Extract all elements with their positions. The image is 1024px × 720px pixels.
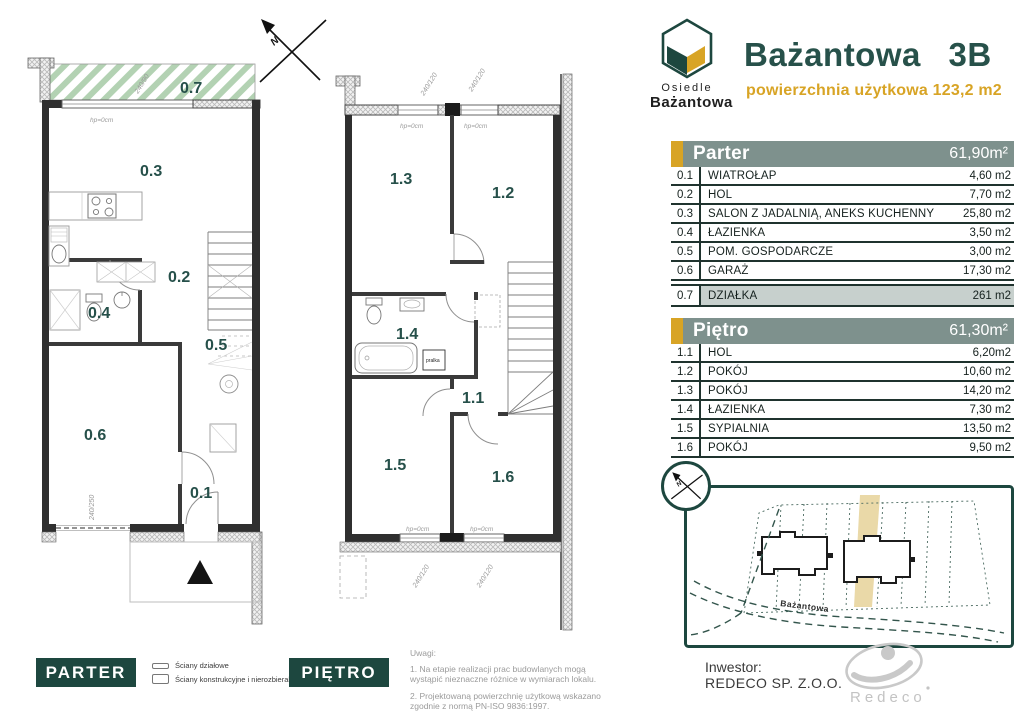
room-area: 7,70 m2: [969, 189, 1011, 201]
parter-floorplan: 0.7 240/90 hp=0cm 240/250: [22, 12, 314, 652]
room-name: WIATROŁAP: [708, 170, 777, 182]
wardrobe: [475, 295, 500, 327]
notes-title: Uwagi:: [410, 648, 620, 659]
legend-label: Ściany konstrukcyjne i nierozbieralne: [175, 675, 298, 684]
room-name: DZIAŁKA: [708, 290, 757, 302]
dzialka-row: 0.7 DZIAŁKA 261 m2: [671, 284, 1014, 307]
dim-garage-door: 240/250: [89, 495, 96, 521]
room-label-1-5: 1.5: [384, 457, 406, 474]
room-id: 1.3: [671, 385, 699, 397]
room-label-1-3: 1.3: [390, 171, 412, 188]
building-outline-right: [844, 536, 910, 583]
toilet-icon: [367, 306, 381, 324]
room-name: ŁAZIENKA: [708, 404, 765, 416]
sill-label: hp=0cm: [406, 526, 430, 533]
table-row: 1.2 POKÓJ 10,60 m2: [671, 363, 1014, 382]
building-outline-left: [762, 532, 827, 575]
room-id: 1.2: [671, 366, 699, 378]
room-label-0-1: 0.1: [190, 485, 212, 502]
room-name: ŁAZIENKA: [708, 227, 765, 239]
parter-table-title: Parter: [693, 143, 750, 165]
north-compass-icon: N: [250, 12, 336, 92]
dim-window: 240/120: [467, 68, 487, 94]
note-text: 2. Projektowaną powierzchnię użytkową ws…: [410, 691, 620, 712]
table-row: 1.4 ŁAZIENKA 7,30 m2: [671, 401, 1014, 420]
washer-icon: [220, 375, 238, 393]
dim-window: 240/120: [419, 72, 439, 98]
table-row: 0.6 GARAŻ 17,30 m2: [671, 262, 1014, 281]
flyer-page: 0.7 240/90 hp=0cm 240/250: [0, 0, 1024, 720]
room-id: 1.6: [671, 442, 699, 454]
pietro-table-title: Piętro: [693, 320, 749, 342]
north-letter: N: [269, 35, 282, 49]
table-row: 0.2 HOL 7,70 m2: [671, 186, 1014, 205]
room-area: 7,30 m2: [969, 404, 1011, 416]
legend-item: Ściany konstrukcyjne i nierozbieralne: [152, 674, 287, 684]
sill-label: hp=0cm: [470, 526, 494, 533]
table-row: 1.5 SYPIALNIA 13,50 m2: [671, 420, 1014, 439]
page-title: Bażantowa 3B: [744, 36, 992, 74]
table-row: 0.5 POM. GOSPODARCZE 3,00 m2: [671, 243, 1014, 262]
pietro-table: Piętro 61,30m² 1.1 HOL 6,20m2 1.2 POKÓJ …: [671, 318, 1014, 458]
partition-wall-swatch-icon: [152, 663, 169, 669]
room-area: 14,20 m2: [963, 385, 1011, 397]
sill-label: hp=0cm: [90, 117, 114, 124]
entrance-arrow-icon: [187, 560, 213, 584]
room-id: 0.7: [671, 286, 699, 305]
room-id: 1.5: [671, 423, 699, 435]
estate-logo: Osiedle Bażantowa: [650, 18, 724, 111]
room-label-0-4: 0.4: [88, 305, 110, 322]
dim-window: 240/120: [475, 564, 495, 590]
room-id: 1.1: [671, 347, 699, 359]
staircase: [208, 232, 252, 330]
parter-table: Parter 61,90m² 0.1 WIATROŁAP 4,60 m2 0.2…: [671, 141, 1014, 281]
structural-wall-swatch-icon: [152, 674, 169, 684]
site-compass-icon: N: [661, 461, 711, 511]
staircase: [508, 262, 553, 414]
room-id: 0.3: [671, 208, 699, 220]
notes-block: Uwagi: 1. Na etapie realizacji prac budo…: [410, 648, 620, 718]
parter-badge: PARTER: [36, 658, 136, 687]
parter-table-header: Parter 61,90m²: [671, 141, 1014, 167]
table-row: 0.1 WIATROŁAP 4,60 m2: [671, 167, 1014, 186]
estate-logo-hexagon-icon: [655, 18, 719, 80]
room-area: 13,50 m2: [963, 423, 1011, 435]
room-label-0-7: 0.7: [180, 80, 202, 97]
table-row: 0.4 ŁAZIENKA 3,50 m2: [671, 224, 1014, 243]
room-area: 10,60 m2: [963, 366, 1011, 378]
room-label-1-2: 1.2: [492, 185, 514, 202]
room-id: 0.6: [671, 265, 699, 277]
terrace-area: [48, 64, 255, 100]
room-area: 3,50 m2: [969, 227, 1011, 239]
room-id: 1.4: [671, 404, 699, 416]
room-name: POKÓJ: [708, 366, 748, 378]
room-area: 3,00 m2: [969, 246, 1011, 258]
legend-label: Ściany działowe: [175, 661, 229, 670]
room-name: SALON Z JADALNIĄ, ANEKS KUCHENNY: [708, 208, 934, 220]
redeco-logo-text: Redeco: [850, 689, 926, 706]
balcony-outline: [340, 556, 366, 598]
investor-label: Inwestor:: [705, 659, 842, 675]
pietro-floorplan: 240/120 240/120 hp=0cm hp=0cm: [328, 12, 580, 652]
room-area: 4,60 m2: [969, 170, 1011, 182]
room-name: POKÓJ: [708, 385, 748, 397]
site-plan: Bażantowa: [684, 485, 1014, 648]
pietro-total-area: 61,30m²: [949, 322, 1008, 340]
room-id: 0.1: [671, 170, 699, 182]
redeco-logo: Redeco: [836, 638, 954, 710]
sill-label: hp=0cm: [464, 123, 488, 130]
sill-label: hp=0cm: [400, 123, 424, 130]
room-id: 0.2: [671, 189, 699, 201]
room-name: HOL: [708, 347, 732, 359]
pietro-badge: PIĘTRO: [289, 658, 389, 687]
page-subtitle: powierzchnia użytkowa 123,2 m2: [746, 82, 1002, 100]
legend-item: Ściany działowe: [152, 661, 287, 670]
room-id: 0.4: [671, 227, 699, 239]
dim-window: 240/120: [411, 564, 431, 590]
room-label-0-5: 0.5: [205, 337, 227, 354]
gold-accent-bar: [671, 141, 683, 167]
gold-accent-bar: [671, 318, 683, 344]
room-area: 25,80 m2: [963, 208, 1011, 220]
room-id: 0.5: [671, 246, 699, 258]
room-name: POKÓJ: [708, 442, 748, 454]
room-area: 6,20m2: [973, 347, 1011, 359]
note-text: 1. Na etapie realizacji prac budowlanych…: [410, 664, 620, 685]
table-row: 1.1 HOL 6,20m2: [671, 344, 1014, 363]
room-label-1-4: 1.4: [396, 326, 418, 343]
room-name: POM. GOSPODARCZE: [708, 246, 833, 258]
room-name: GARAŻ: [708, 265, 749, 277]
wall-legend: Ściany działowe Ściany konstrukcyjne i n…: [152, 661, 287, 688]
estate-name-line1: Osiedle: [650, 82, 724, 94]
room-label-0-6: 0.6: [84, 427, 106, 444]
room-label-1-1: 1.1: [462, 390, 484, 407]
room-name: HOL: [708, 189, 732, 201]
room-label-0-2: 0.2: [168, 269, 190, 286]
room-area: 9,50 m2: [969, 442, 1011, 454]
washer-label: pralka: [426, 358, 440, 364]
room-area: 17,30 m2: [963, 265, 1011, 277]
room-label-0-3: 0.3: [140, 163, 162, 180]
table-row: 1.6 POKÓJ 9,50 m2: [671, 439, 1014, 458]
parter-total-area: 61,90m²: [949, 145, 1008, 163]
room-area: 261 m2: [973, 290, 1011, 302]
table-row: 0.3 SALON Z JADALNIĄ, ANEKS KUCHENNY 25,…: [671, 205, 1014, 224]
investor-block: Inwestor: REDECO SP. Z.O.O.: [705, 659, 842, 691]
table-row: 1.3 POKÓJ 14,20 m2: [671, 382, 1014, 401]
investor-name: REDECO SP. Z.O.O.: [705, 675, 842, 691]
room-label-1-6: 1.6: [492, 469, 514, 486]
dzialka-table: 0.7 DZIAŁKA 261 m2: [671, 284, 1014, 307]
room-name: SYPIALNIA: [708, 423, 769, 435]
kitchen-sink-icon: [52, 245, 66, 263]
pietro-table-header: Piętro 61,30m²: [671, 318, 1014, 344]
estate-name-line2: Bażantowa: [650, 94, 724, 111]
